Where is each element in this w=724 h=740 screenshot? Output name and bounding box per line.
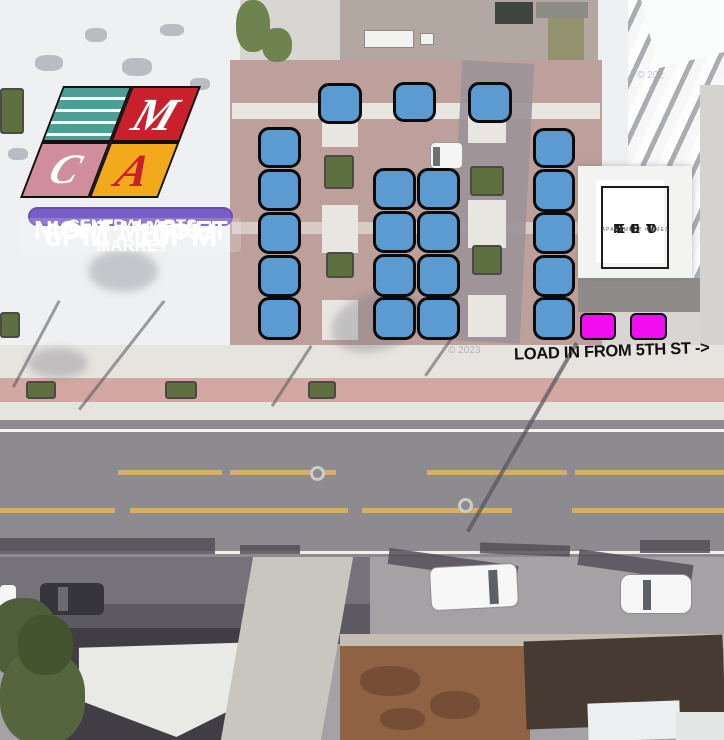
- vendor-booth: [533, 297, 575, 340]
- white-structure: [676, 712, 724, 740]
- walkway-square: [468, 200, 506, 248]
- hvac-unit: [364, 30, 414, 48]
- map-watermark: © 2023: [448, 345, 480, 356]
- event-map: ROO SEV ELT APARTMENT HOMES M C A CENTRA…: [0, 0, 724, 740]
- rooftop-shadow: [122, 58, 152, 76]
- load-in-booth: [630, 313, 667, 340]
- vendor-booth: [417, 211, 460, 253]
- vendor-booth: [258, 127, 301, 168]
- skylight: [495, 2, 533, 24]
- tree-shadow: [28, 348, 88, 378]
- planter-bush: [470, 166, 504, 196]
- vendor-booth: [258, 212, 301, 254]
- rooftop-shadow: [160, 24, 184, 36]
- vendor-booth: [533, 212, 575, 254]
- shadow: [0, 538, 215, 554]
- brick-strip: [0, 378, 724, 402]
- lane-line: [575, 470, 724, 475]
- vendor-booth: [258, 255, 301, 297]
- load-in-booth: [580, 313, 616, 340]
- shadow: [640, 540, 710, 553]
- pavement: [700, 85, 724, 345]
- manhole: [458, 498, 473, 513]
- roof-patch: [548, 18, 584, 64]
- vendor-booth: [393, 82, 436, 122]
- roosevelt-sign-frame: ROO SEV ELT APARTMENT HOMES: [601, 186, 669, 269]
- lane-line: [362, 508, 512, 513]
- vendor-booth: [258, 297, 301, 340]
- vendor-booth: [318, 83, 362, 124]
- roosevelt-sign-subtext: APARTMENT HOMES: [602, 227, 670, 233]
- tree: [18, 615, 73, 675]
- lane-line: [0, 508, 115, 513]
- vendor-booth: [258, 169, 301, 211]
- hvac-unit: [420, 33, 434, 45]
- tree-shadow: [88, 250, 158, 292]
- parked-van: [430, 142, 463, 169]
- walkway-square: [468, 295, 506, 337]
- planter-bush: [0, 312, 20, 338]
- planter-bush: [472, 245, 502, 275]
- lane-line: [130, 508, 348, 513]
- white-truck: [429, 563, 519, 612]
- vendor-booth: [417, 297, 460, 340]
- vendor-booth: [533, 255, 575, 297]
- banner-event-time: 6PM - 10PM: [20, 218, 241, 252]
- vendor-booth: [533, 128, 575, 168]
- road: [0, 420, 724, 557]
- planter-bush: [324, 155, 354, 189]
- planter-bush: [326, 252, 354, 278]
- map-watermark: © 202: [637, 70, 664, 81]
- white-suv: [620, 574, 692, 614]
- vendor-booth: [533, 169, 575, 212]
- skylight: [536, 2, 588, 18]
- rooftop-shadow: [35, 55, 63, 71]
- roosevelt-sign: ROO SEV ELT APARTMENT HOMES: [596, 180, 664, 263]
- planter-bush: [0, 88, 24, 134]
- vendor-booth: [468, 82, 512, 123]
- rooftop-shadow: [85, 28, 107, 42]
- vendor-booth: [373, 168, 416, 210]
- lane-line: [572, 508, 724, 513]
- rooftop-shadow: [8, 148, 28, 160]
- road-edge-line: [0, 429, 724, 432]
- vendor-booth: [417, 168, 460, 210]
- manhole: [310, 466, 325, 481]
- vendor-booth: [373, 254, 416, 297]
- vendor-booth: [417, 254, 460, 297]
- walkway-square: [322, 205, 358, 253]
- dirt-lot: [340, 646, 530, 740]
- shadow: [240, 545, 300, 554]
- vendor-booth: [373, 211, 416, 253]
- tree: [262, 28, 292, 62]
- planter-bush: [308, 381, 336, 399]
- white-structure: [587, 700, 680, 740]
- planter-bush: [26, 381, 56, 399]
- lane-line: [427, 470, 567, 475]
- planter-bush: [165, 381, 197, 399]
- event-banner: CENTRAL ARTS MARKET NIGHT MARKET 6PM - 1…: [28, 207, 233, 226]
- vendor-booth: [373, 297, 416, 340]
- lane-line: [118, 470, 222, 475]
